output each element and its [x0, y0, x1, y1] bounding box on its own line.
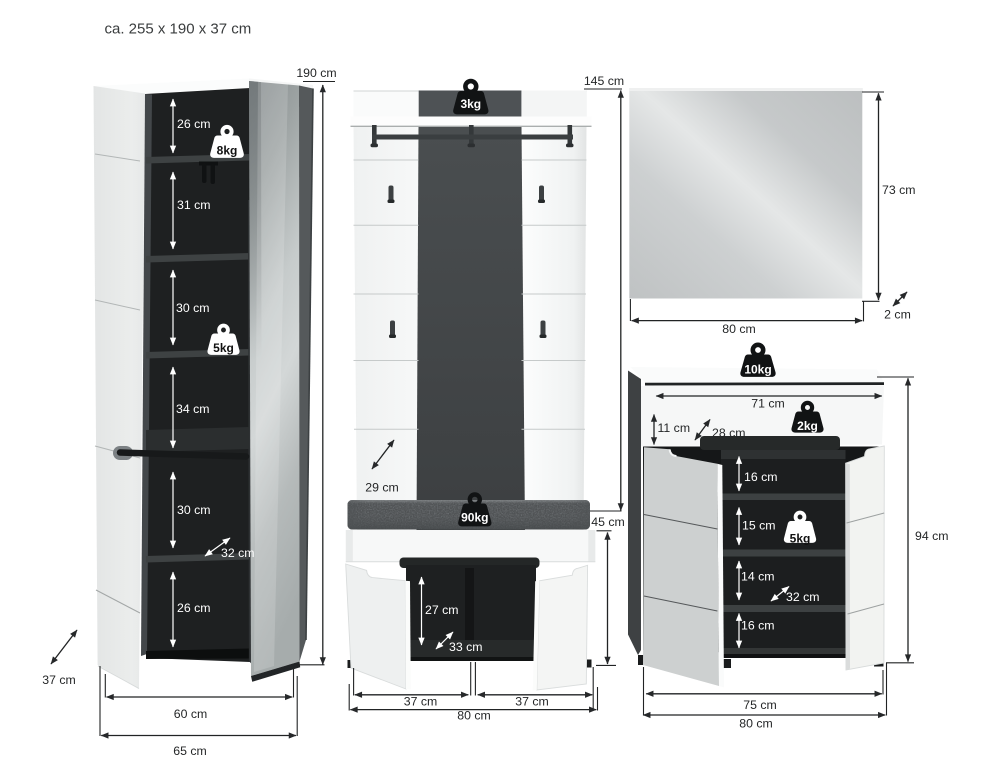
- svg-text:ca. 255 x 190 x 37 cm: ca. 255 x 190 x 37 cm: [105, 21, 252, 38]
- svg-text:2 cm: 2 cm: [884, 308, 911, 322]
- svg-text:11 cm: 11 cm: [658, 421, 691, 435]
- svg-text:28 cm: 28 cm: [712, 426, 746, 440]
- svg-text:37 cm: 37 cm: [404, 695, 438, 709]
- svg-text:29 cm: 29 cm: [365, 481, 399, 495]
- svg-text:190 cm: 190 cm: [296, 66, 336, 80]
- svg-text:90kg: 90kg: [461, 511, 488, 525]
- svg-text:73 cm: 73 cm: [882, 183, 916, 197]
- svg-text:31 cm: 31 cm: [177, 198, 211, 212]
- svg-text:33 cm: 33 cm: [449, 640, 483, 654]
- svg-text:30 cm: 30 cm: [177, 503, 211, 517]
- svg-text:145 cm: 145 cm: [584, 74, 624, 88]
- svg-text:80 cm: 80 cm: [739, 717, 773, 731]
- svg-text:14 cm: 14 cm: [741, 570, 775, 584]
- svg-text:3kg: 3kg: [460, 97, 481, 111]
- svg-text:94 cm: 94 cm: [915, 529, 949, 543]
- svg-text:16 cm: 16 cm: [741, 619, 775, 633]
- svg-text:71 cm: 71 cm: [751, 397, 785, 411]
- svg-text:15 cm: 15 cm: [742, 519, 776, 533]
- svg-text:45 cm: 45 cm: [591, 515, 625, 529]
- svg-text:32 cm: 32 cm: [786, 590, 820, 604]
- svg-text:32 cm: 32 cm: [221, 546, 255, 560]
- svg-text:60 cm: 60 cm: [174, 707, 208, 721]
- svg-text:34 cm: 34 cm: [176, 402, 210, 416]
- svg-text:65 cm: 65 cm: [173, 744, 207, 758]
- svg-text:5kg: 5kg: [790, 532, 811, 546]
- svg-text:2kg: 2kg: [797, 419, 818, 433]
- svg-text:30 cm: 30 cm: [176, 301, 210, 315]
- svg-text:37 cm: 37 cm: [42, 673, 76, 687]
- svg-text:8kg: 8kg: [217, 144, 238, 158]
- svg-text:26 cm: 26 cm: [177, 117, 211, 131]
- svg-text:16 cm: 16 cm: [744, 470, 778, 484]
- svg-text:27 cm: 27 cm: [425, 603, 459, 617]
- svg-text:75 cm: 75 cm: [743, 698, 777, 712]
- svg-text:80 cm: 80 cm: [722, 322, 756, 336]
- svg-text:5kg: 5kg: [213, 341, 234, 355]
- svg-text:37 cm: 37 cm: [515, 695, 549, 709]
- svg-text:80 cm: 80 cm: [457, 709, 491, 723]
- svg-text:10kg: 10kg: [744, 363, 771, 377]
- svg-text:26 cm: 26 cm: [177, 601, 211, 615]
